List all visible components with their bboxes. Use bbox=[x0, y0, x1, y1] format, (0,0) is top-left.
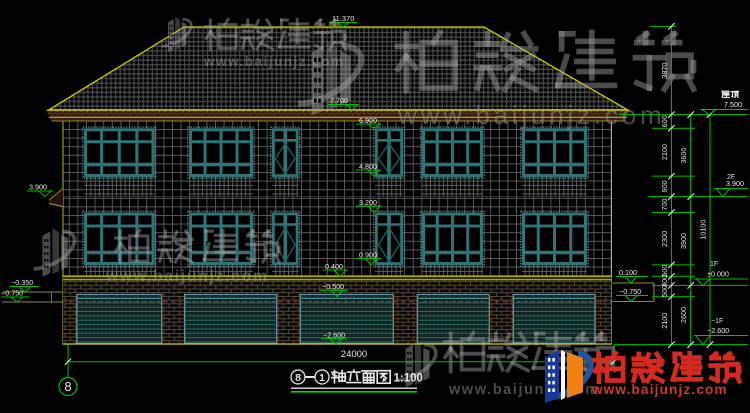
svg-text:2300: 2300 bbox=[660, 231, 669, 247]
svg-text:www.baijunjz.com: www.baijunjz.com bbox=[105, 268, 269, 285]
svg-text:8: 8 bbox=[295, 372, 301, 384]
svg-text:500: 500 bbox=[660, 285, 669, 297]
svg-text:10100: 10100 bbox=[699, 220, 708, 240]
svg-text:3.900: 3.900 bbox=[726, 179, 744, 188]
svg-text:600: 600 bbox=[660, 115, 669, 127]
svg-text:2100: 2100 bbox=[660, 313, 669, 329]
svg-text:700: 700 bbox=[660, 199, 669, 211]
svg-text:0.100: 0.100 bbox=[619, 268, 637, 277]
svg-text:3900: 3900 bbox=[679, 233, 688, 249]
svg-text:1: 1 bbox=[319, 372, 325, 384]
svg-text:−2.600: −2.600 bbox=[323, 331, 345, 340]
svg-text:−0.750: −0.750 bbox=[619, 287, 641, 296]
svg-text:−1F: −1F bbox=[711, 318, 723, 325]
svg-text:3870: 3870 bbox=[660, 63, 669, 79]
svg-text:7.700: 7.700 bbox=[330, 96, 348, 105]
svg-text:www.baijunjz.com: www.baijunjz.com bbox=[591, 382, 728, 397]
svg-text:2600: 2600 bbox=[679, 307, 688, 323]
svg-text:3600: 3600 bbox=[679, 148, 688, 164]
svg-text:900: 900 bbox=[660, 180, 669, 192]
svg-text:24000: 24000 bbox=[341, 349, 367, 360]
svg-text:500: 500 bbox=[660, 265, 669, 277]
svg-text:1:100: 1:100 bbox=[394, 373, 423, 385]
svg-text:3.900: 3.900 bbox=[29, 183, 47, 192]
svg-text:8: 8 bbox=[64, 379, 71, 394]
svg-text:−2.600: −2.600 bbox=[707, 326, 729, 335]
svg-text:7.500: 7.500 bbox=[724, 100, 742, 109]
svg-text:−0.750: −0.750 bbox=[1, 288, 23, 297]
svg-text:2100: 2100 bbox=[660, 144, 669, 160]
svg-text:1F: 1F bbox=[710, 261, 718, 268]
svg-text:−0.350: −0.350 bbox=[11, 278, 33, 287]
svg-text:−0.500: −0.500 bbox=[322, 282, 344, 291]
svg-text:±0.000: ±0.000 bbox=[707, 270, 729, 279]
svg-text:400: 400 bbox=[660, 275, 669, 287]
